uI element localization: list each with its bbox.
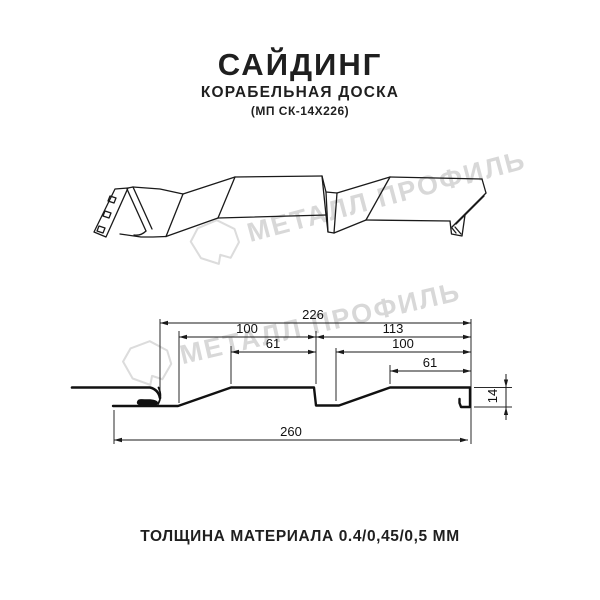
cross-section-drawing: 226 100 113 61 100 61 260 14 bbox=[72, 307, 512, 444]
profile-outline bbox=[72, 388, 470, 408]
metall-profil-stone-icon bbox=[184, 213, 246, 272]
watermark-text: МЕТАЛЛ ПРОФИЛЬ bbox=[177, 276, 464, 371]
product-diagram-page: САЙДИНГ КОРАБЕЛЬНАЯ ДОСКА (МП СК-14Х226)… bbox=[0, 0, 600, 600]
product-model-code: (МП СК-14Х226) bbox=[0, 104, 600, 118]
product-subtitle: КОРАБЕЛЬНАЯ ДОСКА bbox=[0, 84, 600, 102]
dim-label-226: 226 bbox=[302, 307, 324, 322]
dim-label-100-left: 100 bbox=[236, 321, 258, 336]
panel-3d-sketch bbox=[94, 176, 486, 237]
dim-label-100-right: 100 bbox=[392, 336, 414, 351]
dimension-arrowheads bbox=[114, 321, 508, 442]
dim-label-61-left: 61 bbox=[266, 336, 280, 351]
watermark-cross-section: МЕТАЛЛ ПРОФИЛЬ bbox=[117, 268, 466, 392]
dim-label-113: 113 bbox=[383, 321, 404, 336]
metall-profil-stone-icon bbox=[117, 335, 178, 392]
material-thickness-note: ТОЛЩИНА МАТЕРИАЛА 0.4/0,45/0,5 ММ bbox=[0, 528, 600, 546]
page-title: САЙДИНГ bbox=[0, 47, 600, 83]
dim-label-61-right: 61 bbox=[423, 355, 437, 370]
lock-hook-detail bbox=[137, 399, 158, 406]
dim-label-260: 260 bbox=[280, 424, 302, 439]
watermark-text: МЕТАЛЛ ПРОФИЛЬ bbox=[244, 145, 530, 249]
watermark-3d-view: МЕТАЛЛ ПРОФИЛЬ bbox=[184, 137, 532, 272]
dim-label-14: 14 bbox=[485, 389, 500, 403]
